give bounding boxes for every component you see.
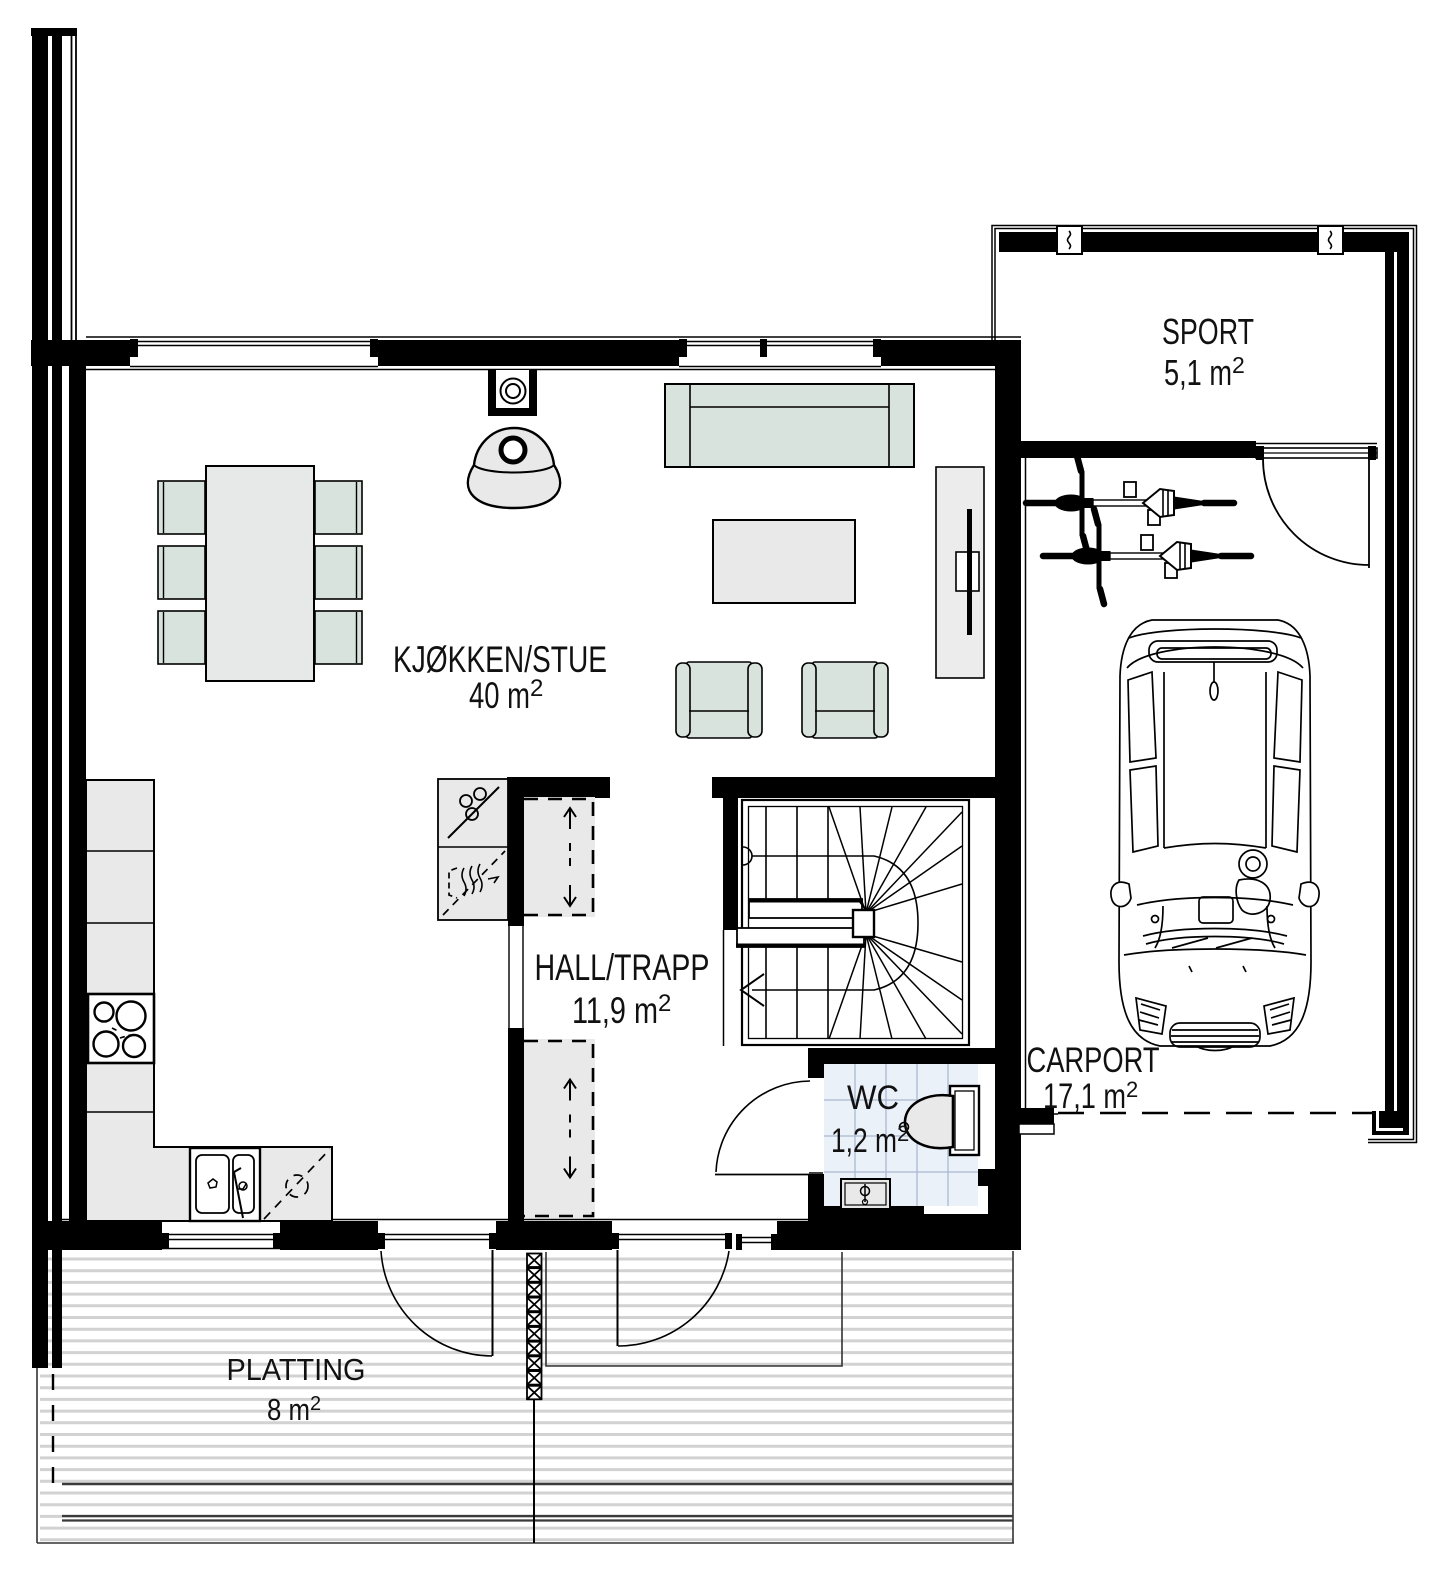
svg-text:11,9 m2: 11,9 m2 [572,990,671,1031]
svg-text:CARPORT: CARPORT [1027,1041,1160,1080]
svg-text:PLATTING: PLATTING [227,1352,366,1387]
svg-text:HALL/TRAPP: HALL/TRAPP [535,947,710,988]
svg-text:17,1 m2: 17,1 m2 [1043,1077,1138,1116]
svg-text:WC: WC [847,1079,899,1117]
svg-text:SPORT: SPORT [1162,311,1254,352]
svg-text:KJØKKEN/STUE: KJØKKEN/STUE [393,639,607,680]
